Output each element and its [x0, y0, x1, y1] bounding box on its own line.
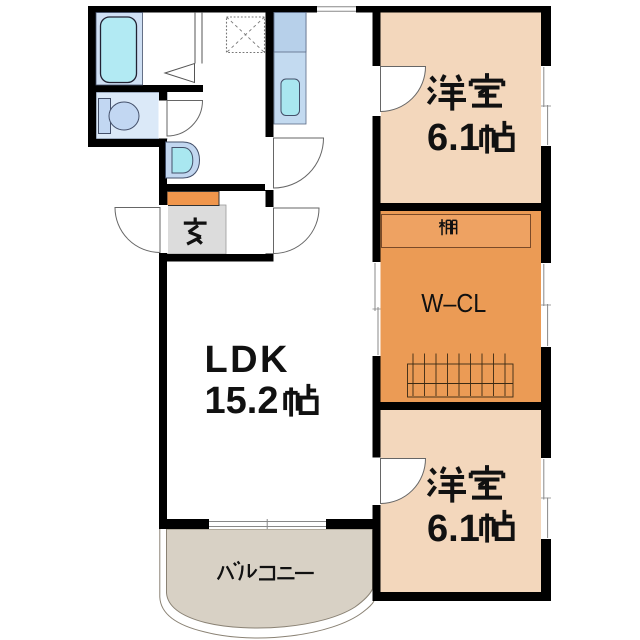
svg-text:6.1: 6.1 — [427, 508, 480, 550]
svg-text:W–CL: W–CL — [421, 288, 486, 318]
svg-text:6.1: 6.1 — [427, 117, 480, 159]
svg-text:15.2: 15.2 — [205, 380, 279, 422]
svg-text:LDK: LDK — [205, 339, 289, 381]
